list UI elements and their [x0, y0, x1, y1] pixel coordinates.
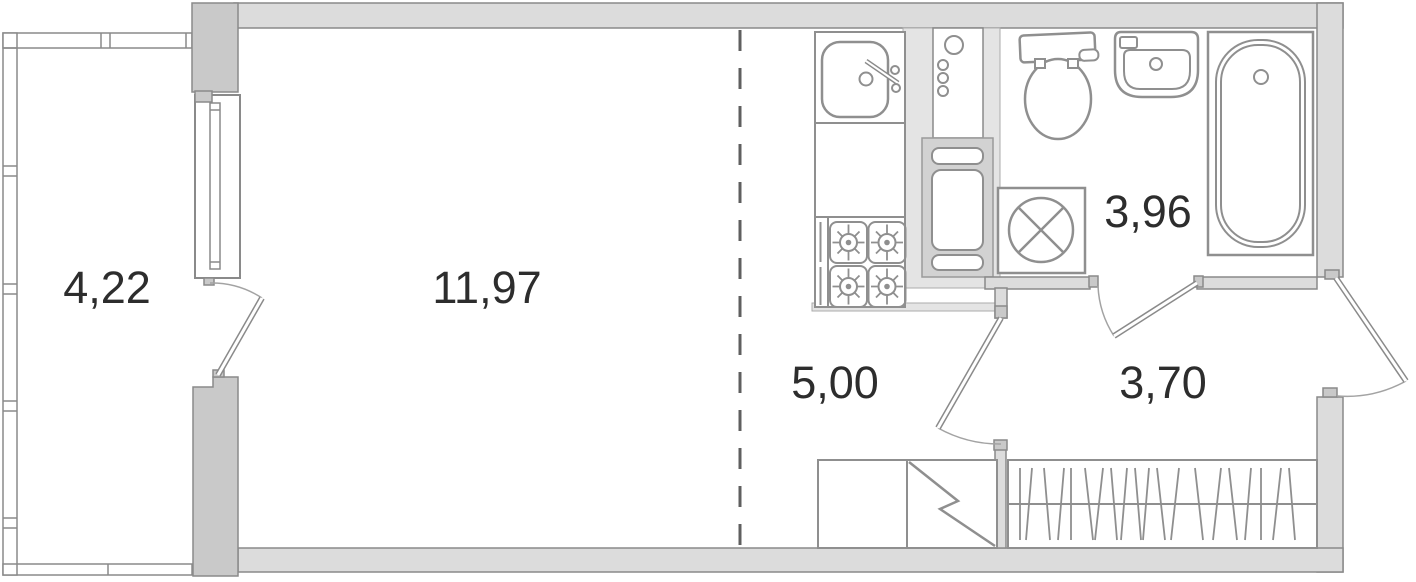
washing-machine	[998, 188, 1085, 273]
pier-bottom	[193, 377, 238, 576]
area-label-hallway: 3,70	[1119, 357, 1207, 408]
area-label-living-room: 11,97	[432, 262, 541, 313]
vent-duct-icon	[932, 170, 983, 250]
kitchen-door-leaf-core	[938, 318, 1001, 428]
balcony-door-swing-arc	[210, 283, 262, 298]
balcony-wall-bottom	[3, 564, 192, 575]
balcony-door	[204, 278, 262, 377]
closet-cell-left	[818, 460, 907, 548]
balcony-door-jamb	[204, 278, 214, 285]
balcony-door-leaf-core	[218, 298, 262, 375]
counter-cell-worktop	[815, 123, 905, 217]
vent-duct-icon	[932, 148, 983, 164]
kitchen-counter	[815, 32, 906, 307]
entry-door-swing-arc	[1337, 381, 1406, 396]
floor-plan: 4,22 11,97 5,00 3,96 3,70	[0, 0, 1416, 582]
vent-duct-icon	[932, 255, 983, 270]
floor-plan-page: 4,22 11,97 5,00 3,96 3,70	[0, 0, 1416, 582]
toilet-hinge-icon	[1035, 59, 1045, 68]
entry-door	[1323, 270, 1406, 397]
kitchen-door-jamb	[994, 440, 1007, 450]
pipe-riser	[933, 28, 983, 138]
kitchen-door	[938, 306, 1007, 450]
balcony-wall-left	[3, 33, 17, 575]
bathroom-door-leaf-core	[1114, 283, 1197, 336]
bathroom-door	[1089, 276, 1203, 336]
toilet	[1019, 32, 1098, 139]
bathroom-door-jamb	[1089, 276, 1098, 287]
balcony-wall-top	[3, 33, 192, 48]
bathroom-south-wall-left	[985, 277, 1090, 289]
entry-door-leaf-core	[1336, 278, 1406, 381]
wardrobe	[1008, 460, 1317, 548]
bathtub	[1208, 32, 1313, 255]
toilet-flush-icon	[1079, 49, 1098, 61]
storage-closet	[818, 460, 997, 548]
kitchen-door-swing-arc	[938, 428, 1001, 444]
washbasin	[1115, 32, 1198, 97]
pier-top	[192, 3, 238, 92]
toilet-hinge-icon	[1068, 59, 1078, 68]
area-label-kitchen: 5,00	[791, 357, 879, 408]
wall-bottom	[238, 548, 1343, 572]
bathroom-door-swing-arc	[1098, 286, 1114, 336]
pier-top-step	[195, 91, 212, 102]
wall-piers	[192, 3, 238, 576]
balcony-window	[195, 95, 240, 278]
ventilation-shaft	[922, 138, 993, 277]
washbasin-tap-icon	[1120, 37, 1137, 48]
wall-right-lower	[1317, 397, 1343, 572]
kitchen-door-hinge	[995, 306, 1007, 318]
entry-door-jamb	[1323, 388, 1337, 397]
bathroom-south-wall-right	[1197, 277, 1317, 289]
window-glazing-line	[210, 103, 220, 269]
area-label-bathroom: 3,96	[1104, 186, 1192, 237]
toilet-bowl-icon	[1025, 59, 1091, 139]
wall-right-upper	[1317, 3, 1343, 277]
area-label-balcony: 4,22	[63, 262, 151, 313]
wall-top	[234, 3, 1343, 28]
